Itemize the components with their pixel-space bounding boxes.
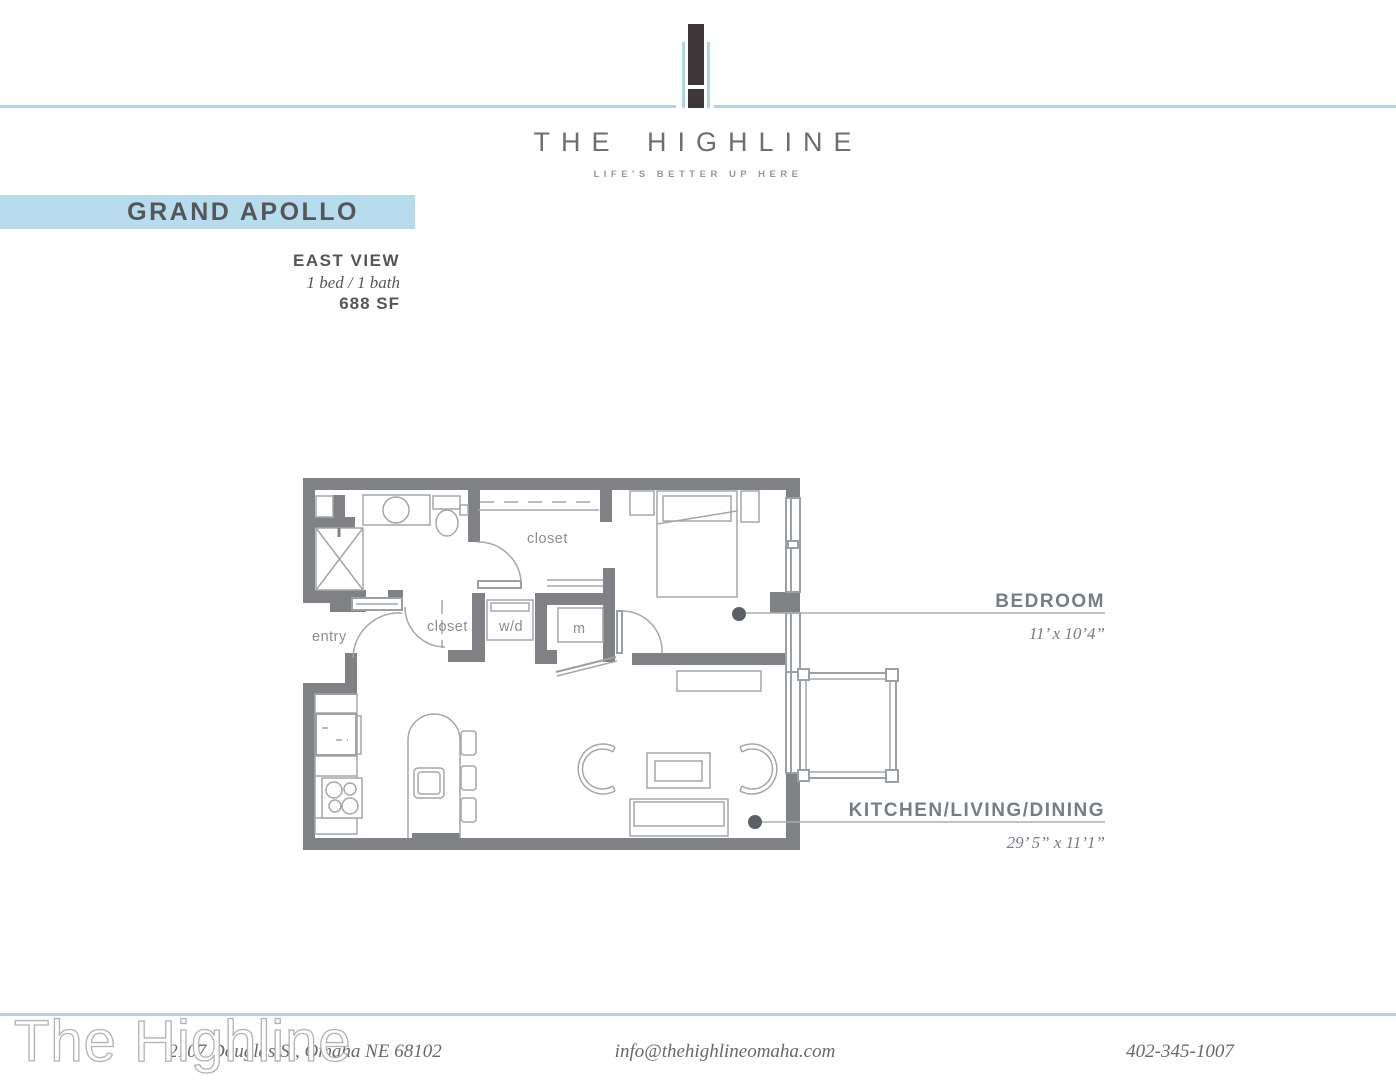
callout-dot-kitchen [748,815,762,829]
callout-dot-bedroom [732,607,746,621]
windows [786,498,800,773]
callout-label-kitchen: KITCHEN/LIVING/DINING [849,800,1105,821]
doors [352,542,662,676]
watermark: The Highline [14,1008,352,1075]
room-label-washer-dryer: w/d [498,619,523,635]
callout-dim-bedroom: 11’ x 10’4” [1029,624,1105,643]
page: THE HIGHLINE LIFE'S BETTER UP HERE GRAND… [0,0,1396,1080]
room-label-entry: entry [312,629,347,645]
callout-kitchen-living-dining: KITCHEN/LIVING/DINING 29’ 5” x 11’1” [748,800,1105,852]
kitchen-fixtures [315,694,476,838]
callout-label-bedroom: BEDROOM [995,591,1105,612]
footer-email: info@thehighlineomaha.com [615,1041,836,1063]
living-furniture [578,744,777,836]
callout-dim-kitchen: 29’ 5” x 11’1” [1007,833,1105,852]
balcony [798,669,898,782]
floorplan-drawing: entry closet closet w/d m BEDROOM 11’ x … [0,0,1396,1080]
room-label-closet-upper: closet [527,531,568,547]
room-label-mechanical: m [573,621,586,637]
footer-phone: 402-345-1007 [1126,1041,1234,1063]
room-label-closet-lower: closet [427,619,468,635]
